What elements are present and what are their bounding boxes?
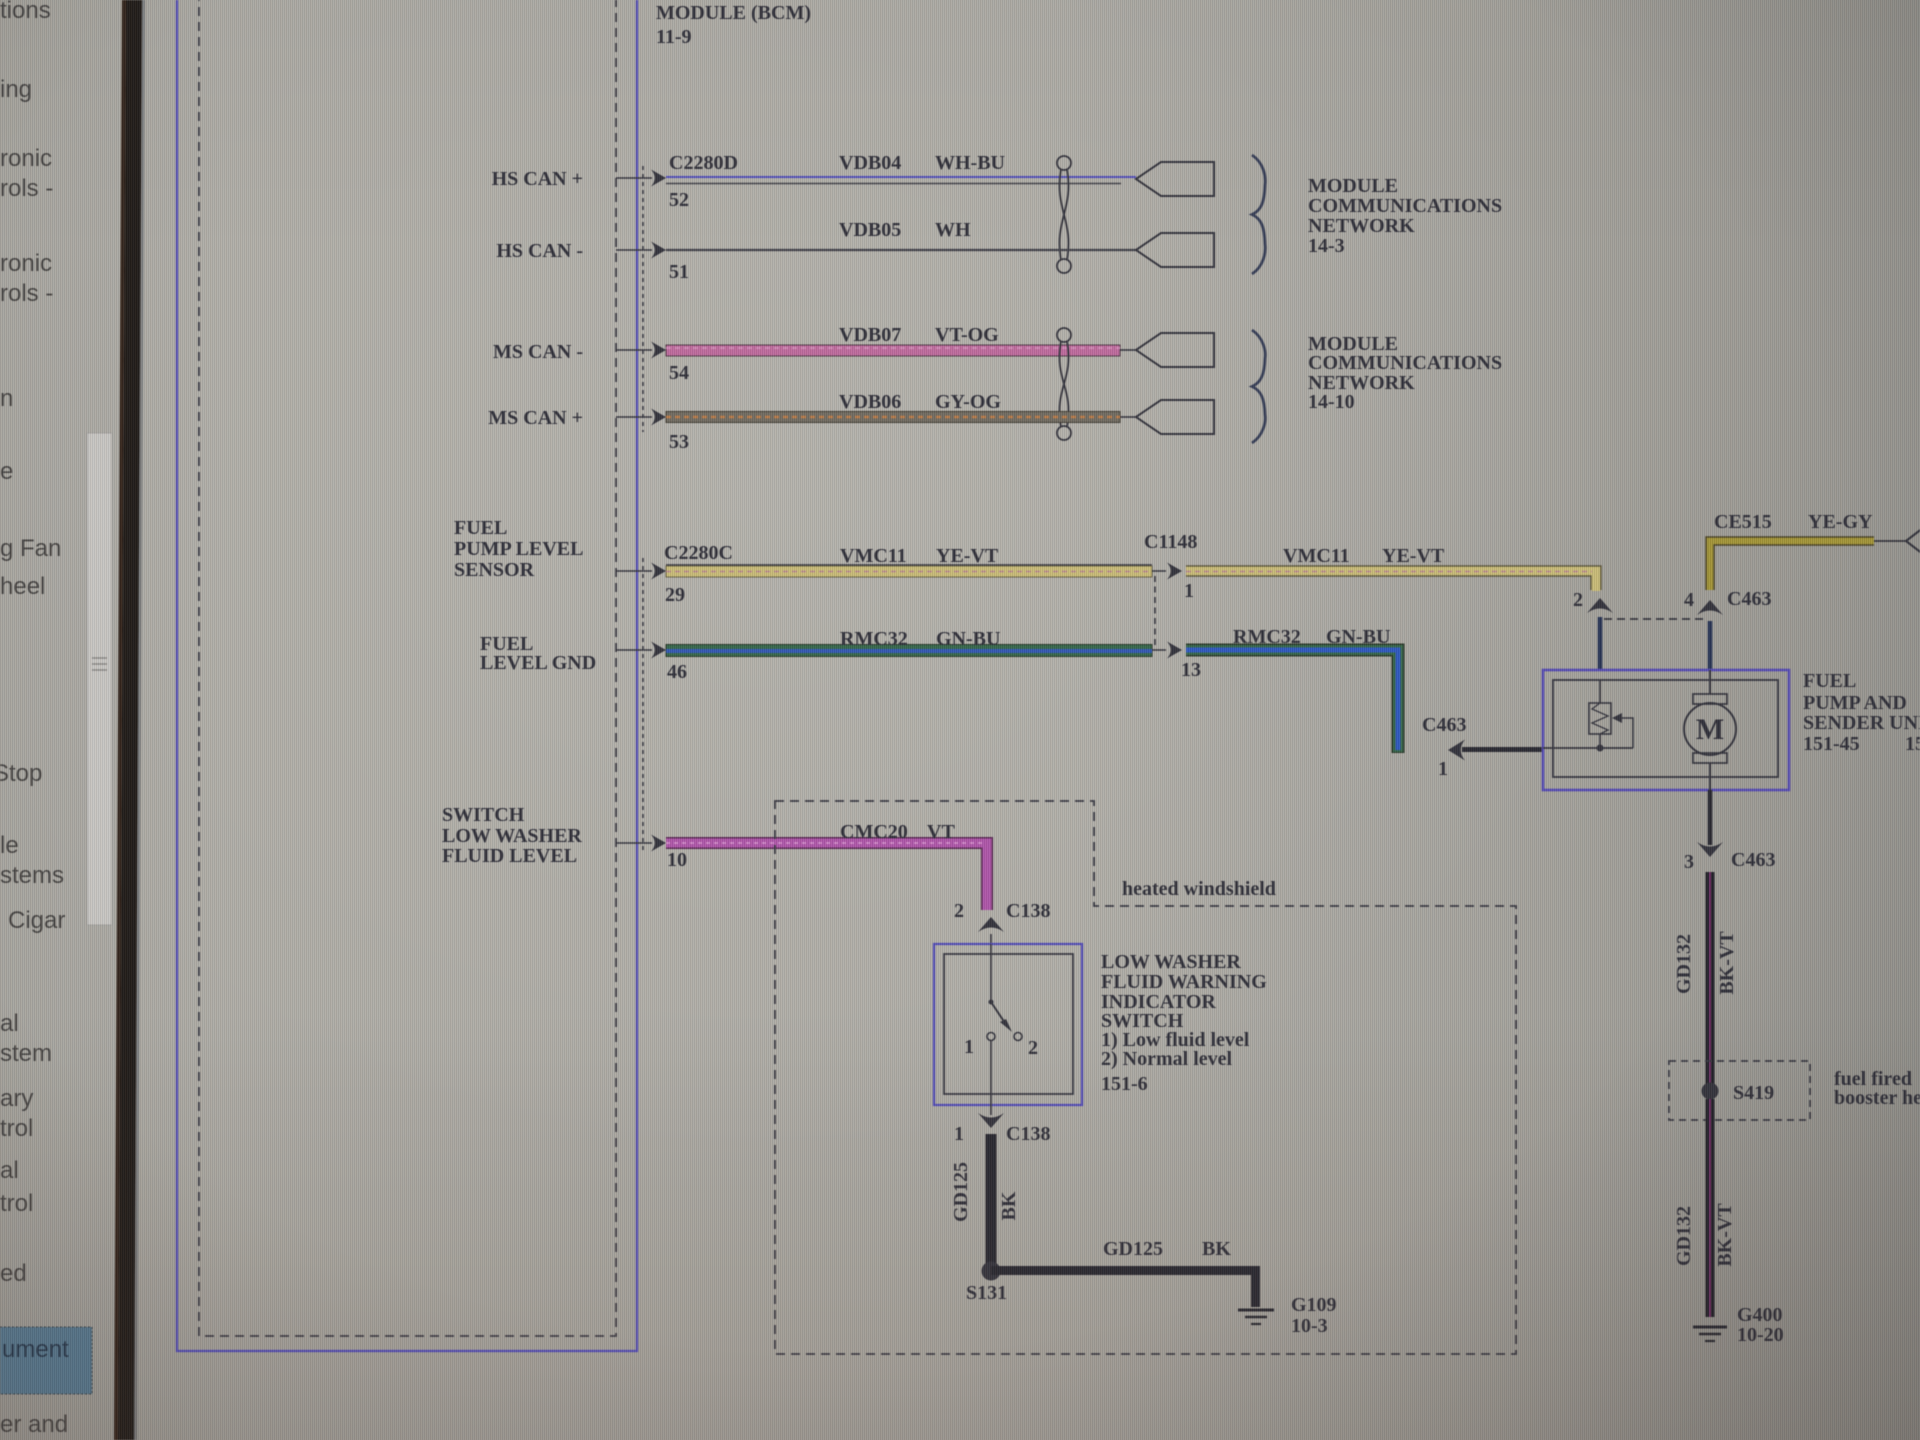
svg-text:C463: C463: [1731, 849, 1775, 871]
svg-text:BK-VT: BK-VT: [1716, 931, 1738, 995]
svg-text:CMC20: CMC20: [840, 821, 908, 843]
svg-text:51: 51: [669, 261, 689, 283]
svg-text:10: 10: [667, 849, 687, 871]
svg-text:14-10: 14-10: [1308, 391, 1355, 413]
svg-text:BK-VT: BK-VT: [1714, 1203, 1736, 1267]
svg-text:10-3: 10-3: [1291, 1315, 1328, 1337]
svg-text:Stop: Stop: [0, 760, 42, 787]
svg-text:e: e: [0, 458, 13, 485]
svg-text:ary: ary: [0, 1085, 33, 1112]
svg-text:52: 52: [669, 189, 689, 211]
svg-text:VDB06: VDB06: [839, 391, 901, 413]
svg-text:MODULE (BCM): MODULE (BCM): [656, 2, 811, 24]
svg-text:ronic: ronic: [0, 250, 52, 277]
svg-text:YE-VT: YE-VT: [1382, 545, 1445, 567]
svg-text:stems: stems: [0, 862, 64, 889]
svg-text:BK: BK: [998, 1191, 1020, 1220]
svg-text:13: 13: [1181, 659, 1201, 681]
svg-text:2: 2: [954, 900, 964, 922]
svg-text:GD125: GD125: [950, 1162, 972, 1222]
svg-text:er and: er and: [0, 1411, 68, 1438]
svg-text:1: 1: [1184, 580, 1194, 602]
svg-text:LEVEL GND: LEVEL GND: [480, 652, 596, 674]
svg-text:HS CAN -: HS CAN -: [496, 240, 583, 262]
svg-text:trol: trol: [0, 1115, 33, 1142]
svg-text:MS CAN -: MS CAN -: [493, 341, 583, 363]
svg-text:SENSOR: SENSOR: [454, 559, 535, 581]
svg-text:29: 29: [665, 584, 685, 606]
svg-text:PUMP AND: PUMP AND: [1803, 692, 1907, 714]
svg-text:FUEL: FUEL: [1803, 670, 1856, 692]
svg-text:CE515: CE515: [1714, 511, 1772, 533]
svg-text:stem: stem: [0, 1040, 52, 1067]
svg-text:NETWORK: NETWORK: [1308, 215, 1415, 237]
svg-text:1: 1: [964, 1036, 974, 1058]
svg-text:1: 1: [954, 1123, 964, 1145]
svg-text:ument: ument: [2, 1336, 69, 1363]
svg-text:MS CAN +: MS CAN +: [488, 407, 583, 429]
svg-text:151-7: 151-7: [1905, 733, 1920, 755]
svg-text:54: 54: [669, 362, 689, 384]
svg-text:n: n: [0, 385, 13, 412]
svg-text:151-6: 151-6: [1101, 1073, 1148, 1095]
svg-text:46: 46: [667, 661, 687, 683]
svg-text:C463: C463: [1422, 714, 1466, 736]
svg-text:COMMUNICATIONS: COMMUNICATIONS: [1308, 352, 1502, 374]
svg-text:FLUID LEVEL: FLUID LEVEL: [442, 845, 577, 867]
svg-text:53: 53: [669, 431, 689, 453]
svg-text:VDB07: VDB07: [839, 324, 901, 346]
svg-text:GY-OG: GY-OG: [935, 391, 1001, 413]
svg-text:LOW WASHER: LOW WASHER: [442, 825, 582, 847]
svg-text:VT: VT: [927, 821, 955, 843]
svg-text:RMC32: RMC32: [840, 628, 908, 650]
svg-text:FUEL: FUEL: [454, 517, 507, 539]
svg-text:GN-BU: GN-BU: [936, 628, 1000, 650]
svg-text:g Fan: g Fan: [0, 535, 61, 562]
svg-text:4: 4: [1684, 589, 1694, 611]
svg-text:3: 3: [1684, 851, 1694, 873]
svg-text:PUMP LEVEL: PUMP LEVEL: [454, 538, 583, 560]
svg-text:2: 2: [1028, 1037, 1038, 1059]
svg-text:VDB04: VDB04: [839, 152, 901, 174]
svg-text:LOW WASHER: LOW WASHER: [1101, 951, 1241, 973]
svg-text:S131: S131: [966, 1282, 1007, 1304]
svg-text:2: 2: [1573, 589, 1583, 611]
svg-text:YE-GY: YE-GY: [1808, 511, 1873, 533]
svg-text:G109: G109: [1291, 1294, 1337, 1316]
svg-text:rols -: rols -: [0, 175, 53, 202]
svg-text:151-45: 151-45: [1803, 733, 1860, 755]
svg-text:heated windshield: heated windshield: [1122, 878, 1276, 900]
svg-text:M: M: [1696, 713, 1724, 746]
svg-text:YE-VT: YE-VT: [936, 545, 999, 567]
svg-text:VMC11: VMC11: [1283, 545, 1350, 567]
svg-text:SENDER UNIT: SENDER UNIT: [1803, 712, 1920, 734]
svg-text:BK: BK: [1202, 1238, 1231, 1260]
svg-text:al: al: [0, 1010, 19, 1037]
svg-text:ing: ing: [0, 76, 32, 103]
svg-text:C138: C138: [1006, 900, 1050, 922]
svg-text:GD125: GD125: [1103, 1238, 1163, 1260]
svg-text:G400: G400: [1737, 1304, 1783, 1326]
svg-text:WH: WH: [935, 219, 971, 241]
svg-text:C2280D: C2280D: [669, 152, 738, 174]
svg-text:VMC11: VMC11: [840, 545, 907, 567]
svg-text:COMMUNICATIONS: COMMUNICATIONS: [1308, 195, 1502, 217]
svg-text:trol: trol: [0, 1190, 33, 1217]
svg-text:C2280C: C2280C: [664, 542, 733, 564]
svg-text:Cigar: Cigar: [8, 907, 65, 934]
svg-text:1: 1: [1438, 758, 1448, 780]
svg-text:11-9: 11-9: [656, 26, 692, 48]
svg-text:rols -: rols -: [0, 280, 53, 307]
svg-text:tions: tions: [0, 0, 51, 24]
svg-text:VT-OG: VT-OG: [935, 324, 999, 346]
svg-text:ronic: ronic: [0, 145, 52, 172]
svg-text:S419: S419: [1733, 1082, 1774, 1104]
svg-text:GD132: GD132: [1673, 934, 1695, 994]
svg-text:HS CAN +: HS CAN +: [492, 168, 583, 190]
svg-text:10-20: 10-20: [1737, 1324, 1784, 1346]
svg-text:heel: heel: [0, 573, 45, 600]
svg-text:C138: C138: [1006, 1123, 1050, 1145]
svg-text:WH-BU: WH-BU: [935, 152, 1005, 174]
svg-text:al: al: [0, 1157, 19, 1184]
svg-text:MODULE: MODULE: [1308, 175, 1398, 197]
svg-text:RMC32: RMC32: [1233, 626, 1301, 648]
svg-text:le: le: [0, 832, 19, 859]
svg-text:C1148: C1148: [1144, 531, 1197, 553]
svg-text:ed: ed: [0, 1260, 27, 1287]
svg-text:C463: C463: [1727, 588, 1771, 610]
svg-text:2) Normal level: 2) Normal level: [1101, 1048, 1233, 1070]
svg-text:GD132: GD132: [1673, 1206, 1695, 1266]
svg-text:SWITCH: SWITCH: [442, 804, 525, 826]
svg-text:VDB05: VDB05: [839, 219, 901, 241]
svg-text:GN-BU: GN-BU: [1326, 626, 1390, 648]
svg-text:14-3: 14-3: [1308, 235, 1345, 257]
svg-text:FLUID WARNING: FLUID WARNING: [1101, 971, 1267, 993]
svg-text:booster hea: booster hea: [1834, 1087, 1920, 1109]
